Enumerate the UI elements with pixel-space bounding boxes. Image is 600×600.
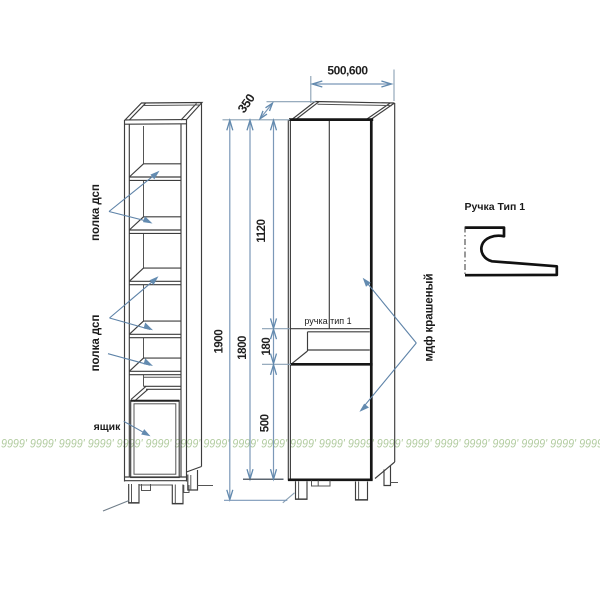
svg-text:ящик: ящик [94, 421, 121, 433]
svg-text:500,600: 500,600 [327, 63, 368, 77]
svg-text:ручка тип 1: ручка тип 1 [304, 316, 351, 326]
svg-text:180: 180 [261, 338, 273, 356]
svg-text:полка дсп: полка дсп [90, 315, 102, 372]
svg-text:500: 500 [259, 414, 271, 432]
svg-text:мдф крашеный: мдф крашеный [423, 273, 435, 361]
svg-text:Ручка Тип 1: Ручка Тип 1 [465, 201, 526, 213]
svg-text:9999' 9999' 9999' 9999' 9999': 9999' 9999' 9999' 9999' 9999' 9999' 9999… [1, 437, 600, 451]
svg-text:полка дсп: полка дсп [90, 184, 102, 241]
svg-text:1800: 1800 [237, 336, 249, 360]
svg-text:1120: 1120 [256, 219, 268, 242]
svg-text:1900: 1900 [213, 330, 225, 354]
